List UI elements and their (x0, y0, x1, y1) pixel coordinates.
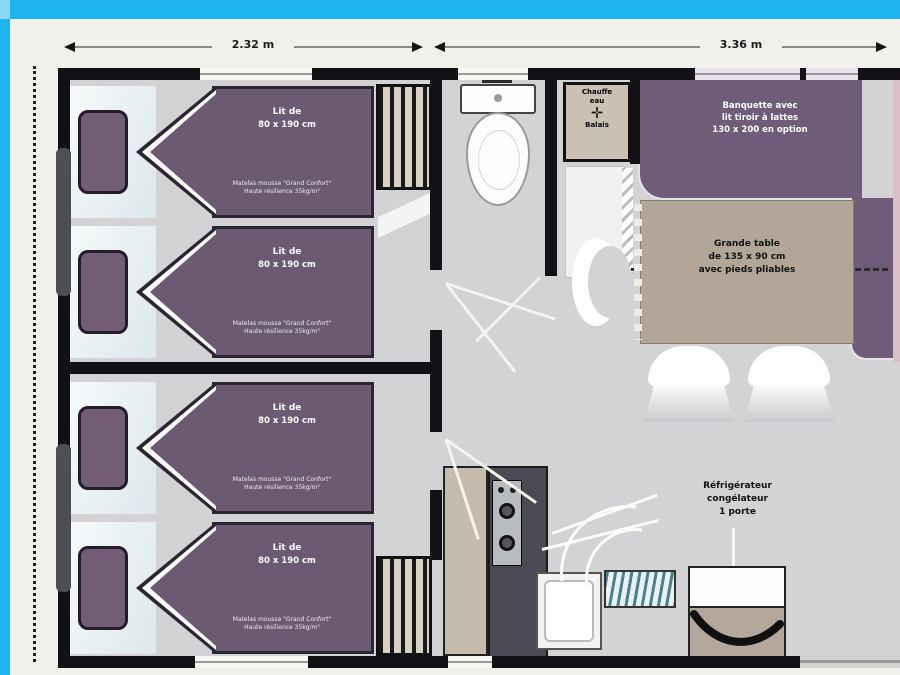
bed-2-mattress-line2: Haute résilience 35kg/m³ (190, 328, 374, 336)
table-line3: avec pieds pliables (660, 264, 834, 277)
wall-closet-right (630, 80, 640, 164)
toilet-flush-button (494, 94, 502, 102)
bed-3-size: 80 x 190 cm (200, 415, 374, 428)
fridge-label: Réfrigérateur congélateur 1 porte (665, 480, 810, 519)
utility-closet-line3: Balais (566, 121, 628, 129)
bed-4-mattress-note: Matelas mousse "Grand Confort" Haute rés… (190, 616, 374, 632)
table-line1: Grande table (660, 238, 834, 251)
fridge-top (688, 566, 786, 608)
wall-bedroom-divider (58, 362, 442, 374)
window-bottom-kitchen (448, 656, 492, 668)
dimension-line-vertical (33, 66, 36, 662)
fridge-line1: Réfrigérateur (665, 480, 810, 493)
fridge-base (688, 606, 786, 658)
fridge-pointer-line (732, 528, 735, 566)
page-frame-left (0, 0, 10, 675)
burner-small-1 (498, 487, 504, 493)
bed-4-title: Lit de (200, 542, 374, 555)
banquette-back-strip (893, 78, 900, 362)
bed-2-label: Lit de 80 x 190 cm (200, 246, 374, 272)
wall-bottom-thin (800, 660, 900, 663)
chair-3-mask (588, 246, 632, 318)
bed-4-label: Lit de 80 x 190 cm (200, 542, 374, 568)
dimension-label-right: 3.36 m (700, 38, 782, 51)
dim-arrow-right (876, 42, 887, 52)
window-left-bedroom2 (56, 444, 71, 592)
table-edge-scallop (634, 204, 642, 340)
floorplan-page: 2.32 m 3.36 m Lit de 80 x 190 cm Matelas… (0, 0, 900, 675)
bed-1-mattress-line1: Matelas mousse "Grand Confort" (190, 180, 374, 188)
wardrobe-bottom (376, 556, 432, 656)
burner-large-2 (499, 535, 515, 551)
bed-3-mattress-note: Matelas mousse "Grand Confort" Haute rés… (190, 476, 374, 492)
dim-arrow-mid1 (412, 42, 423, 52)
page-frame-top (0, 0, 900, 19)
dim-arrow-left (64, 42, 75, 52)
window-bottom-bedroom (195, 656, 308, 668)
pillow (78, 546, 128, 630)
fridge-line3: 1 porte (665, 506, 810, 519)
cooktop (492, 480, 522, 566)
window-top-bedroom (200, 68, 312, 80)
bed-2-size: 80 x 190 cm (200, 259, 374, 272)
sink-basin (544, 580, 594, 642)
dimension-label-left: 2.32 m (212, 38, 294, 51)
bed-1-mattress-line2: Haute résilience 35kg/m³ (190, 188, 374, 196)
bed-4-size: 80 x 190 cm (200, 555, 374, 568)
wall-wc-right (545, 80, 557, 276)
wall-bottom (58, 656, 800, 668)
bed-2-title: Lit de (200, 246, 374, 259)
pillow (78, 250, 128, 334)
wardrobe-top (376, 84, 432, 190)
bed-2-mattress-line1: Matelas mousse "Grand Confort" (190, 320, 374, 328)
pillow (78, 110, 128, 194)
banquette-seat-right (850, 198, 894, 360)
fridge-door-curve (690, 608, 784, 656)
table-line2: de 135 x 90 cm (660, 251, 834, 264)
utility-closet: Chauffe eau ✛ Balais (563, 82, 631, 162)
fridge-line2: congélateur (665, 493, 810, 506)
pillow (78, 406, 128, 490)
window-top-living-1 (695, 68, 800, 80)
bed-1-title: Lit de (200, 106, 374, 119)
bed-3-mattress-line2: Haute résilience 35kg/m³ (190, 484, 374, 492)
table-label: Grande table de 135 x 90 cm avec pieds p… (660, 238, 834, 277)
wall-hallway-3 (430, 490, 442, 560)
dim-arrow-mid2 (434, 42, 445, 52)
banquette-line2: lit tiroir à lattes (660, 112, 860, 124)
bed-3-mattress-line1: Matelas mousse "Grand Confort" (190, 476, 374, 484)
bed-2-mattress-note: Matelas mousse "Grand Confort" Haute rés… (190, 320, 374, 336)
banquette-line1: Banquette avec (660, 100, 860, 112)
bed-3-title: Lit de (200, 402, 374, 415)
burner-large-1 (499, 503, 515, 519)
wall-hallway-2 (430, 330, 442, 432)
bed-3-label: Lit de 80 x 190 cm (200, 402, 374, 428)
toilet-bowl-inner (478, 130, 520, 190)
banquette-line3: 130 x 200 en option (660, 124, 860, 136)
banquette-seat-top (638, 80, 862, 200)
window-top-wc (458, 68, 528, 80)
bed-1-label: Lit de 80 x 190 cm (200, 106, 374, 132)
bed-4-mattress-line1: Matelas mousse "Grand Confort" (190, 616, 374, 624)
bed-4-mattress-line2: Haute résilience 35kg/m³ (190, 624, 374, 632)
dimension-line-right (436, 46, 884, 48)
window-top-living-2 (806, 68, 858, 80)
wall-hallway-1 (430, 80, 442, 270)
chair-1-seat (644, 382, 734, 422)
chair-2-seat (744, 382, 834, 422)
banquette-label: Banquette avec lit tiroir à lattes 130 x… (660, 100, 860, 136)
bed-1-size: 80 x 190 cm (200, 119, 374, 132)
bed-1-mattress-note: Matelas mousse "Grand Confort" Haute rés… (190, 180, 374, 196)
window-left-bedroom1 (56, 148, 71, 296)
page-frame-corner (0, 0, 10, 19)
utility-closet-line1: Chauffe (566, 88, 628, 97)
valve-cross-icon: ✛ (566, 105, 628, 121)
